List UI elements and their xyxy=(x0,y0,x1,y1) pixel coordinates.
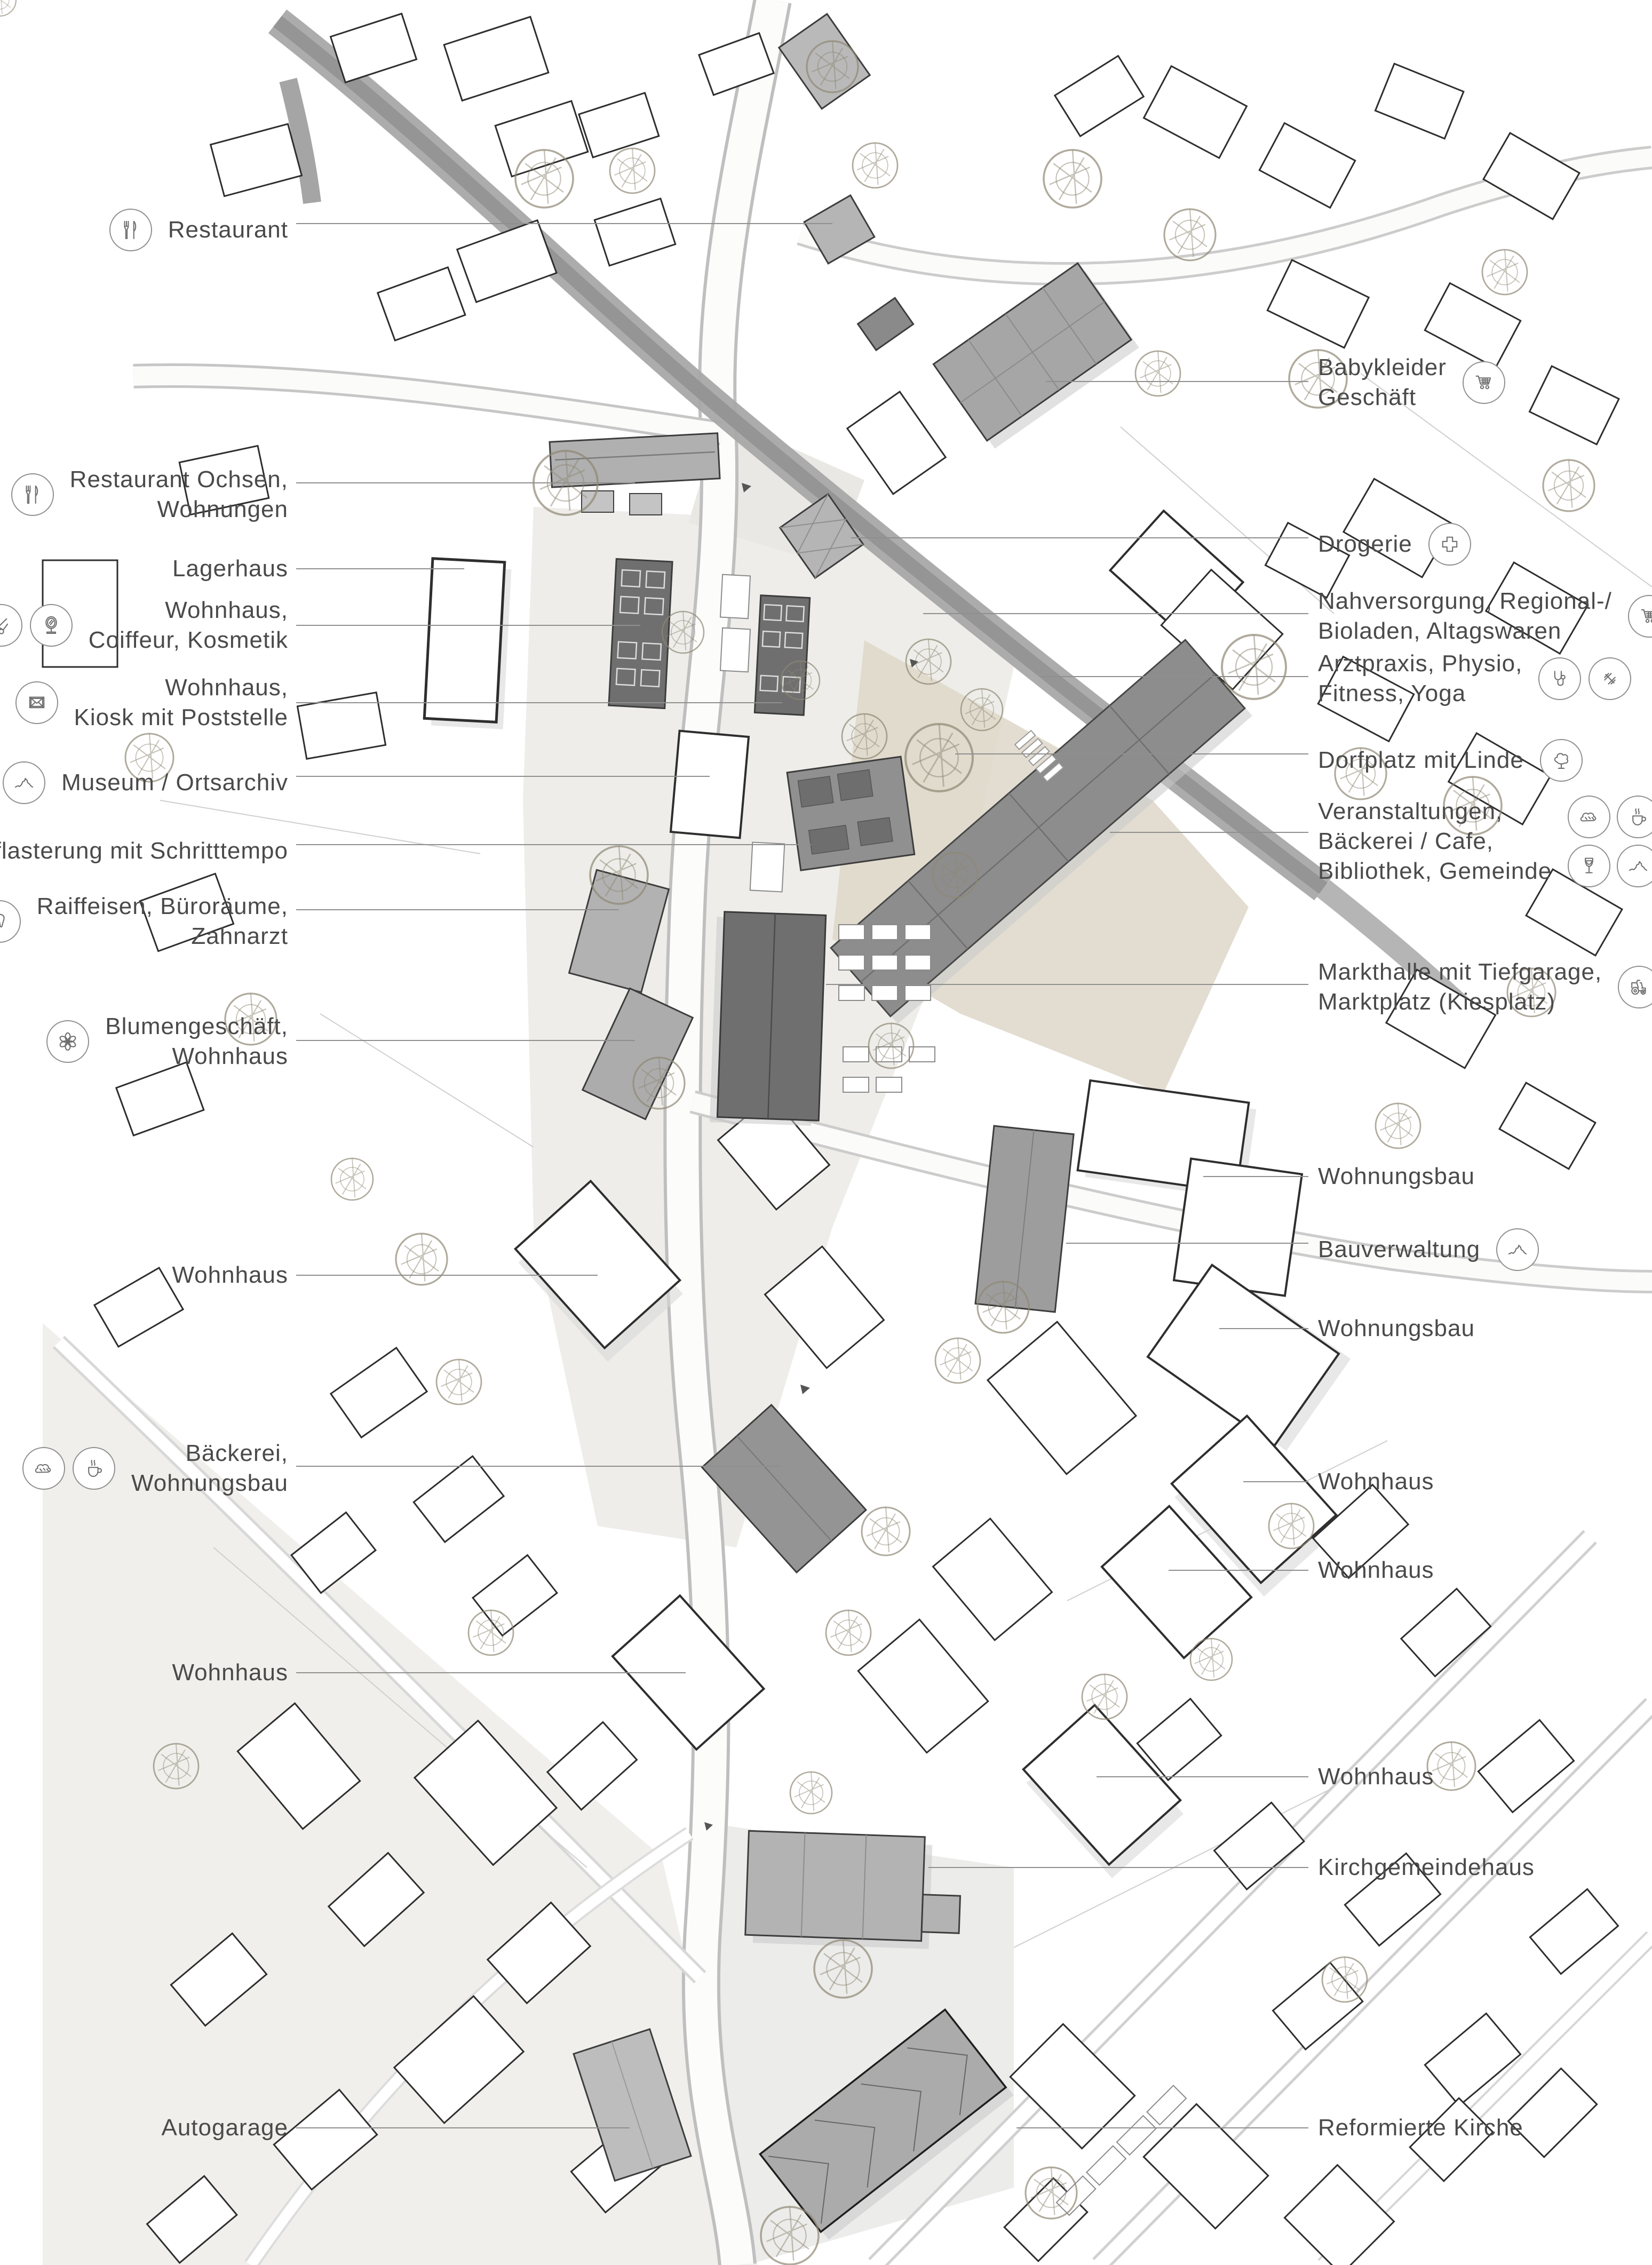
label-text: Kiosk mit Poststelle xyxy=(74,703,288,733)
label-text: Wohnhaus, xyxy=(89,595,288,625)
fork-knife-icon xyxy=(11,473,54,516)
label-restaurant: Restaurant xyxy=(109,209,288,251)
label-baeckerei-wohnungsbau: Bäckerei,Wohnungsbau xyxy=(22,1439,288,1498)
wine-icon xyxy=(1568,845,1610,887)
fork-knife-icon xyxy=(109,209,152,251)
scissors-icon xyxy=(0,604,22,647)
ridge-icon xyxy=(3,761,45,804)
label-text: Drogerie xyxy=(1318,529,1412,559)
label-text: Reformierte Kirche xyxy=(1318,2113,1523,2143)
cross-icon xyxy=(1428,523,1471,566)
tractor-icon xyxy=(1618,966,1652,1008)
label-restaurant-ochsen: Restaurant Ochsen,Wohnungen xyxy=(11,465,288,524)
label-markthalle: Markthalle mit Tiefgarage,Marktplatz (Ki… xyxy=(1318,957,1652,1017)
label-text: Bioladen, Altagswaren xyxy=(1318,616,1612,646)
label-babykleider: BabykleiderGeschäft xyxy=(1318,353,1505,412)
label-text: Dorfplatz mit Linde xyxy=(1318,745,1524,775)
label-text: Wohnhaus, xyxy=(74,673,288,703)
label-text: Veranstaltungen, xyxy=(1318,797,1552,826)
label-text: Marktplatz (Kiesplatz) xyxy=(1318,987,1602,1017)
label-text: Wohnhaus xyxy=(1318,1762,1434,1792)
label-text: Coiffeur, Kosmetik xyxy=(89,625,288,655)
label-text: Bäckerei / Cafe, xyxy=(1318,826,1552,856)
label-wohnhaus-r3: Wohnhaus xyxy=(1318,1762,1434,1792)
label-text: Babykleider xyxy=(1318,353,1447,383)
label-pflasterung: Pflasterung mit Schritttempo xyxy=(0,830,288,872)
label-text: Markthalle mit Tiefgarage, xyxy=(1318,957,1602,987)
mirror-icon xyxy=(30,604,73,647)
site-plan-map xyxy=(0,0,1652,2265)
label-text: Wohnhaus xyxy=(105,1042,288,1071)
label-text: Raiffeisen, Büroräume, xyxy=(37,892,288,921)
label-text: Lagerhaus xyxy=(172,554,288,584)
label-autogarage: Autogarage xyxy=(161,2113,288,2143)
label-reformierte-kirche: Reformierte Kirche xyxy=(1318,2113,1523,2143)
label-wohnungsbau-1: Wohnungsbau xyxy=(1318,1162,1475,1191)
cart-icon xyxy=(1463,361,1505,404)
label-raiffeisen-zahnarzt: Raiffeisen, Büroräume,Zahnarzt xyxy=(0,892,288,951)
label-coiffeur-kosmetik: Wohnhaus,Coiffeur, Kosmetik xyxy=(0,595,288,655)
label-lagerhaus: Lagerhaus xyxy=(172,554,288,584)
cart-icon xyxy=(1628,595,1652,638)
label-text: Geschäft xyxy=(1318,383,1447,412)
ridge-icon xyxy=(1617,845,1652,887)
coffee-icon xyxy=(1617,796,1652,838)
label-text: Wohnungsbau xyxy=(1318,1162,1475,1191)
label-text: Wohnhaus xyxy=(172,1260,288,1290)
label-wohnhaus-r1: Wohnhaus xyxy=(1318,1467,1434,1497)
label-blumengeschaeft: Blumengeschäft,Wohnhaus xyxy=(46,1012,288,1071)
label-text: Nahversorgung, Regional-/ xyxy=(1318,586,1612,616)
label-text: Wohnungsbau xyxy=(131,1468,288,1498)
label-text: Pflasterung mit Schritttempo xyxy=(0,836,288,866)
envelope-icon xyxy=(15,681,58,724)
label-text: Wohnungsbau xyxy=(1318,1314,1475,1344)
label-dorfplatz: Dorfplatz mit Linde xyxy=(1318,739,1583,782)
bread-icon xyxy=(1568,796,1610,838)
label-text: Blumengeschäft, xyxy=(105,1012,288,1042)
site-plan-page: Restaurant Restaurant Ochsen,Wohnungen L… xyxy=(0,0,1652,2265)
label-kirchgemeindehaus: Kirchgemeindehaus xyxy=(1318,1853,1535,1882)
label-wohnhaus-r2: Wohnhaus xyxy=(1318,1555,1434,1585)
label-text: Bibliothek, Gemeinde xyxy=(1318,856,1552,886)
ridge-icon xyxy=(1496,1228,1539,1271)
label-text: Wohnhaus xyxy=(1318,1555,1434,1585)
label-text: Wohnhaus xyxy=(172,1658,288,1688)
stethoscope-icon xyxy=(1538,657,1581,700)
label-text: Museum / Ortsarchiv xyxy=(61,768,288,798)
label-text: Zahnarzt xyxy=(37,921,288,951)
label-text: Restaurant xyxy=(168,215,288,245)
label-museum-ortsarchiv: Museum / Ortsarchiv xyxy=(3,761,288,804)
label-veranstaltungen: Veranstaltungen,Bäckerei / Cafe,Biblioth… xyxy=(1318,796,1652,887)
label-text: Fitness, Yoga xyxy=(1318,679,1522,709)
label-text: Arztpraxis, Physio, xyxy=(1318,649,1522,679)
label-text: Bauverwaltung xyxy=(1318,1235,1480,1265)
tree-icon xyxy=(1540,739,1583,782)
bread-icon xyxy=(22,1447,65,1490)
label-text: Autogarage xyxy=(161,2113,288,2143)
coffee-icon xyxy=(73,1447,115,1490)
label-text: Kirchgemeindehaus xyxy=(1318,1853,1535,1882)
dumbbell-icon xyxy=(1589,657,1631,700)
label-wohnhaus-2: Wohnhaus xyxy=(172,1658,288,1688)
label-wohnhaus-1: Wohnhaus xyxy=(172,1260,288,1290)
label-text: Restaurant Ochsen, xyxy=(70,465,288,495)
label-arztpraxis: Arztpraxis, Physio,Fitness, Yoga xyxy=(1318,649,1631,709)
flower-icon xyxy=(46,1020,89,1063)
tooth-icon xyxy=(0,900,21,943)
label-bauverwaltung: Bauverwaltung xyxy=(1318,1228,1539,1271)
label-nahversorgung: Nahversorgung, Regional-/Bioladen, Altag… xyxy=(1318,586,1652,646)
label-text: Bäckerei, xyxy=(131,1439,288,1468)
label-drogerie: Drogerie xyxy=(1318,523,1471,566)
label-wohnungsbau-2: Wohnungsbau xyxy=(1318,1314,1475,1344)
label-kiosk-poststelle: Wohnhaus,Kiosk mit Poststelle xyxy=(15,673,288,733)
label-text: Wohnhaus xyxy=(1318,1467,1434,1497)
label-text: Wohnungen xyxy=(70,495,288,524)
